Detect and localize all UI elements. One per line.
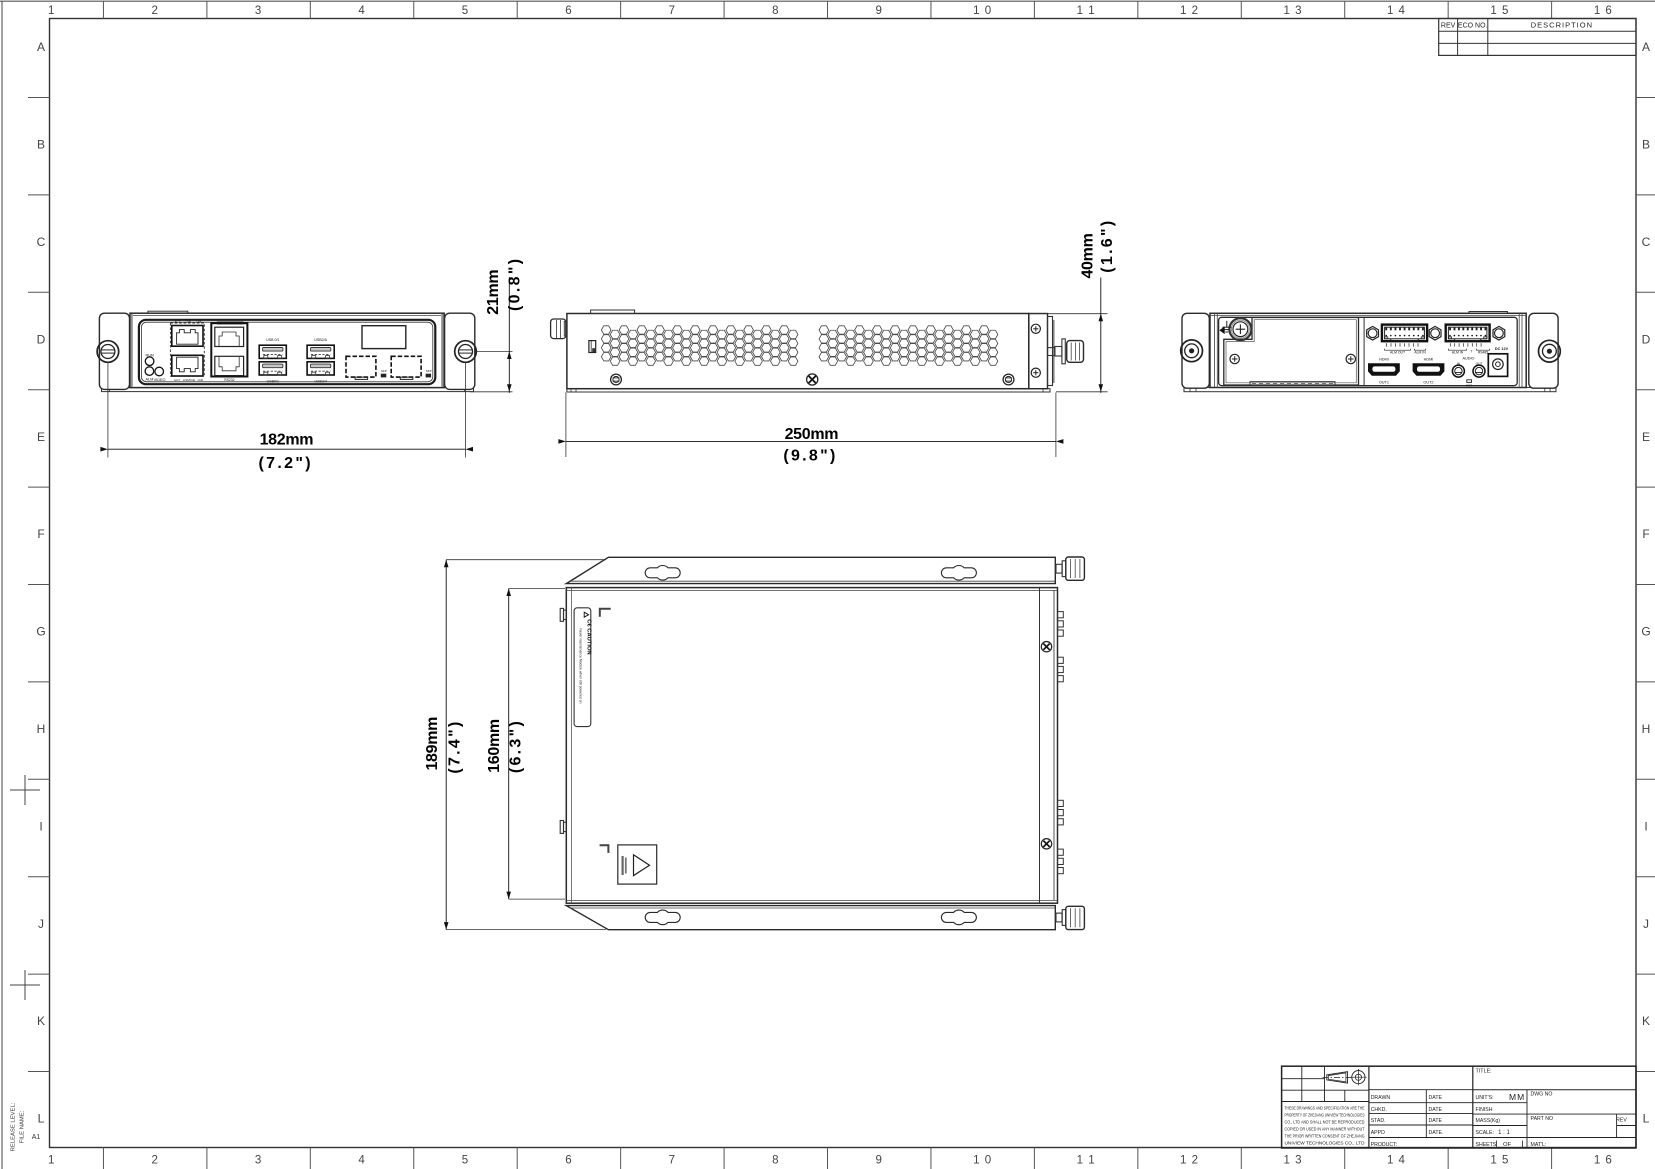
svg-text:APPD: APPD [1371, 1130, 1385, 1136]
svg-text:A1: A1 [32, 1134, 41, 1141]
svg-text:AUDIO: AUDIO [1462, 356, 1474, 360]
svg-text:(7.4"): (7.4") [447, 719, 464, 773]
svg-text:7: 7 [669, 1155, 676, 1167]
svg-text:USB 0/1: USB 0/1 [266, 338, 279, 342]
svg-text:VIDEO: VIDEO [154, 378, 166, 382]
svg-text:THESE DRAWINGS AND SPECIFICATI: THESE DRAWINGS AND SPECIFICATION ARE THE [1285, 1106, 1365, 1112]
svg-text:OF: OF [1503, 1142, 1512, 1148]
svg-text:(7.2"): (7.2") [259, 455, 313, 472]
svg-text:F: F [37, 527, 44, 541]
svg-text:1 6: 1 6 [1594, 5, 1613, 17]
svg-text:Never maintenance Module when: Never maintenance Module when still powe… [578, 628, 582, 703]
svg-text:ALM IN: ALM IN [1414, 350, 1426, 354]
svg-text:9: 9 [876, 1155, 883, 1167]
svg-text:DATE: DATE [1429, 1107, 1443, 1113]
svg-text:5: 5 [462, 5, 469, 17]
svg-text:250mm: 250mm [785, 426, 839, 443]
svg-text:C€ CAUTION: C€ CAUTION [585, 619, 591, 654]
svg-text:1 5: 1 5 [1490, 1155, 1509, 1167]
svg-text:F: F [1642, 527, 1649, 541]
svg-text:9: 9 [876, 5, 883, 17]
svg-text:DATE: DATE [1429, 1118, 1443, 1124]
svg-text:SFP: SFP [381, 369, 387, 373]
svg-text:REV: REV [1616, 1118, 1627, 1124]
svg-text:H: H [37, 722, 46, 736]
svg-text:8: 8 [772, 1155, 779, 1167]
svg-text:D: D [37, 332, 46, 346]
svg-text:5: 5 [462, 1155, 469, 1167]
svg-text:2: 2 [151, 1155, 158, 1167]
svg-text:MAT'L:: MAT'L: [1531, 1142, 1547, 1148]
svg-text:CO., LTD AND SHALL NOT BE REP: CO., LTD AND SHALL NOT BE REPRODUCED [1285, 1120, 1365, 1126]
svg-text:SCALE:: SCALE: [1476, 1130, 1494, 1136]
svg-text:1 0: 1 0 [973, 1155, 992, 1167]
svg-text:SFP: SFP [426, 369, 432, 373]
svg-text:G: G [36, 625, 45, 639]
svg-text:K: K [1642, 1014, 1650, 1028]
svg-text:ALM OUT: ALM OUT [1390, 350, 1405, 354]
svg-text:H: H [1642, 722, 1651, 736]
svg-text:LNK: LNK [196, 320, 202, 324]
svg-text:E: E [37, 430, 45, 444]
svg-text:L: L [38, 1112, 45, 1126]
svg-text:ACT: ACT [174, 378, 180, 382]
svg-text:21mm: 21mm [485, 270, 502, 315]
svg-text:PROPERTY OF ZHEJIANG UNIVIEW T: PROPERTY OF ZHEJIANG UNIVIEW TECHNOLOGIE… [1285, 1113, 1365, 1119]
svg-text:RS232: RS232 [224, 378, 234, 382]
svg-text:RS485: RS485 [1478, 350, 1488, 354]
svg-text:DATE: DATE [1429, 1095, 1443, 1101]
svg-text:(6.3"): (6.3") [508, 719, 525, 773]
svg-text:D: D [1642, 332, 1651, 346]
svg-text:RUN: RUN [145, 354, 153, 358]
svg-text:FILE NAME:: FILE NAME: [20, 1110, 26, 1143]
svg-text:3: 3 [255, 1155, 262, 1167]
svg-text:G: G [1641, 625, 1650, 639]
svg-text:DATE.: DATE. [1429, 1130, 1444, 1136]
svg-text:8: 8 [772, 5, 779, 17]
svg-text:I: I [1644, 819, 1647, 833]
svg-text:J: J [1643, 917, 1649, 931]
svg-text:160mm: 160mm [486, 719, 503, 773]
svg-text:B: B [37, 138, 45, 152]
svg-text:J: J [38, 917, 44, 931]
svg-text:UNIT'S:: UNIT'S: [1476, 1095, 1494, 1101]
svg-text:SHEETS: SHEETS [1476, 1142, 1497, 1148]
svg-text:1 6: 1 6 [1594, 1155, 1613, 1167]
svg-text:B: B [1642, 138, 1650, 152]
svg-text:ALM: ALM [145, 378, 153, 382]
svg-text:A: A [1642, 40, 1650, 54]
svg-text:UNIVIEW TECHNOLOGIES CO., LTD: UNIVIEW TECHNOLOGIES CO., LTD [1285, 1141, 1366, 1147]
svg-text:(9.8"): (9.8") [783, 447, 837, 464]
svg-text:LNK: LNK [198, 378, 204, 382]
svg-text:MASS(Kg): MASS(Kg) [1476, 1118, 1501, 1124]
svg-text:1 2: 1 2 [1180, 5, 1199, 17]
svg-text:DC 12V: DC 12V [1495, 347, 1509, 351]
svg-text:DWG NO: DWG NO [1531, 1092, 1553, 1098]
svg-text:1 3: 1 3 [1284, 5, 1303, 17]
svg-text:T: T [1471, 350, 1473, 354]
svg-text:4: 4 [358, 5, 365, 17]
svg-text:182mm: 182mm [260, 432, 314, 449]
svg-text:I: I [39, 819, 42, 833]
svg-text:1: 1 [48, 1155, 55, 1167]
svg-text:RELEASE LEVEL:: RELEASE LEVEL: [11, 1102, 17, 1151]
svg-text:(0.8"): (0.8") [507, 257, 524, 311]
svg-text:L: L [1643, 1112, 1650, 1126]
svg-text:ALM IN: ALM IN [1452, 350, 1464, 354]
svg-text:1 1: 1 1 [1077, 5, 1096, 17]
svg-text:TITLE:: TITLE: [1476, 1069, 1492, 1075]
svg-text:1: 1 [48, 5, 55, 17]
svg-text:USB2/A: USB2/A [314, 338, 327, 342]
svg-text:REV: REV [1441, 23, 1456, 30]
svg-text:A: A [37, 40, 45, 54]
svg-text:HDMI: HDMI [1379, 357, 1389, 361]
svg-text:RST: RST [1466, 383, 1472, 387]
svg-text:USB0/1: USB0/1 [267, 380, 279, 384]
svg-text:PRODUCT:: PRODUCT: [1371, 1142, 1398, 1148]
svg-text:ACT: ACT [175, 320, 181, 324]
svg-text:40mm: 40mm [1079, 233, 1096, 278]
svg-text:1 4: 1 4 [1387, 1155, 1406, 1167]
svg-text:CHKD.: CHKD. [1371, 1107, 1387, 1113]
svg-text:STAD.: STAD. [1371, 1118, 1386, 1124]
svg-text:DESCRIPTION: DESCRIPTION [1531, 21, 1593, 30]
svg-text:189mm: 189mm [424, 717, 441, 771]
svg-text:1 2: 1 2 [1180, 1155, 1199, 1167]
svg-text:FINISH: FINISH [1476, 1107, 1493, 1113]
svg-text:OUT2: OUT2 [1423, 380, 1433, 384]
svg-text:ECO NO.: ECO NO. [1458, 23, 1488, 30]
svg-text:(1.6"): (1.6") [1099, 218, 1116, 272]
svg-text:LNK/PoE: LNK/PoE [183, 378, 195, 382]
svg-text:6: 6 [565, 5, 572, 17]
svg-text:COPIED OR USED IN ANY MANNER W: COPIED OR USED IN ANY MANNER WITHOUT [1285, 1127, 1365, 1133]
svg-text:1 3: 1 3 [1284, 1155, 1303, 1167]
svg-text:MM: MM [1509, 1092, 1525, 1102]
svg-text:HDMI: HDMI [1424, 357, 1434, 361]
svg-text:OUT1: OUT1 [1379, 380, 1389, 384]
svg-text:6: 6 [565, 1155, 572, 1167]
svg-text:LNK: LNK [186, 320, 192, 324]
svg-text:THE PRIOR WRITTEN CONSENT OF Z: THE PRIOR WRITTEN CONSENT OF ZHEJIANG [1285, 1134, 1365, 1140]
svg-text:7: 7 [669, 5, 676, 17]
svg-text:PART NO: PART NO [1531, 1116, 1553, 1122]
svg-text:K: K [37, 1014, 45, 1028]
svg-text:3: 3 [255, 5, 262, 17]
svg-text:2: 2 [151, 5, 158, 17]
svg-text:1 0: 1 0 [973, 5, 992, 17]
svg-text:USB3/4: USB3/4 [315, 380, 327, 384]
svg-text:1 4: 1 4 [1387, 5, 1406, 17]
svg-text:E: E [1642, 430, 1650, 444]
svg-text:C: C [1642, 235, 1651, 249]
svg-text:4: 4 [358, 1155, 365, 1167]
svg-text:C: C [37, 235, 46, 249]
svg-text:1 1: 1 1 [1077, 1155, 1096, 1167]
svg-text:1 : 1: 1 : 1 [1498, 1130, 1510, 1136]
svg-text:DRAWN: DRAWN [1371, 1095, 1391, 1101]
svg-text:1 5: 1 5 [1490, 5, 1509, 17]
